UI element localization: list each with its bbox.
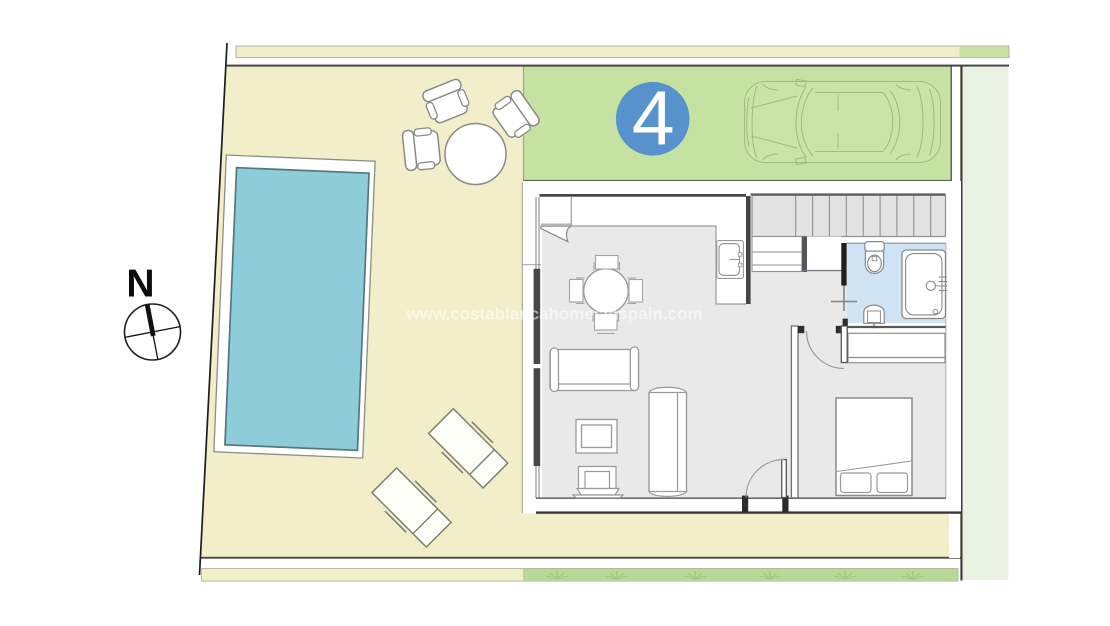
svg-text:N: N <box>126 263 154 306</box>
svg-text:4: 4 <box>632 76 675 162</box>
svg-text:www.costablancahomesinspain.co: www.costablancahomesinspain.com <box>405 305 702 324</box>
